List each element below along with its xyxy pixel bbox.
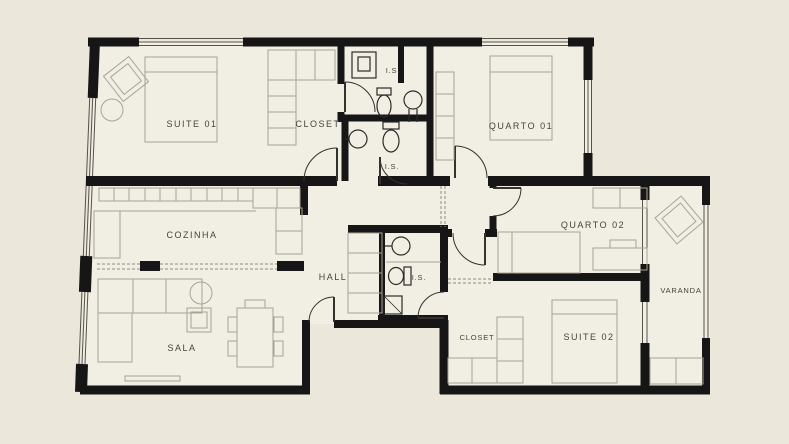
floor-plan-page: SUITE 01 CLOSET I.S. QUARTO 01 I.S. COZI… (0, 0, 789, 444)
room-label-quarto-01: QUARTO 01 (489, 121, 553, 131)
room-label-sala: SALA (167, 343, 196, 353)
room-label-quarto-02: QUARTO 02 (561, 220, 625, 230)
room-label-suite-02: SUITE 02 (563, 332, 614, 342)
room-label-closet-1: CLOSET (295, 119, 340, 129)
room-label-cozinha: COZINHA (167, 230, 218, 240)
room-label-is-2: I.S. (385, 162, 399, 171)
room-label-varanda: VARANDA (660, 286, 701, 295)
room-label-suite-01: SUITE 01 (166, 119, 217, 129)
floor-plan: SUITE 01 CLOSET I.S. QUARTO 01 I.S. COZI… (0, 0, 789, 444)
room-label-is-3: I.S. (412, 273, 426, 282)
room-label-closet-2: CLOSET (460, 333, 495, 342)
room-label-hall: HALL (319, 272, 348, 282)
room-label-is-1: I.S. (386, 66, 400, 75)
